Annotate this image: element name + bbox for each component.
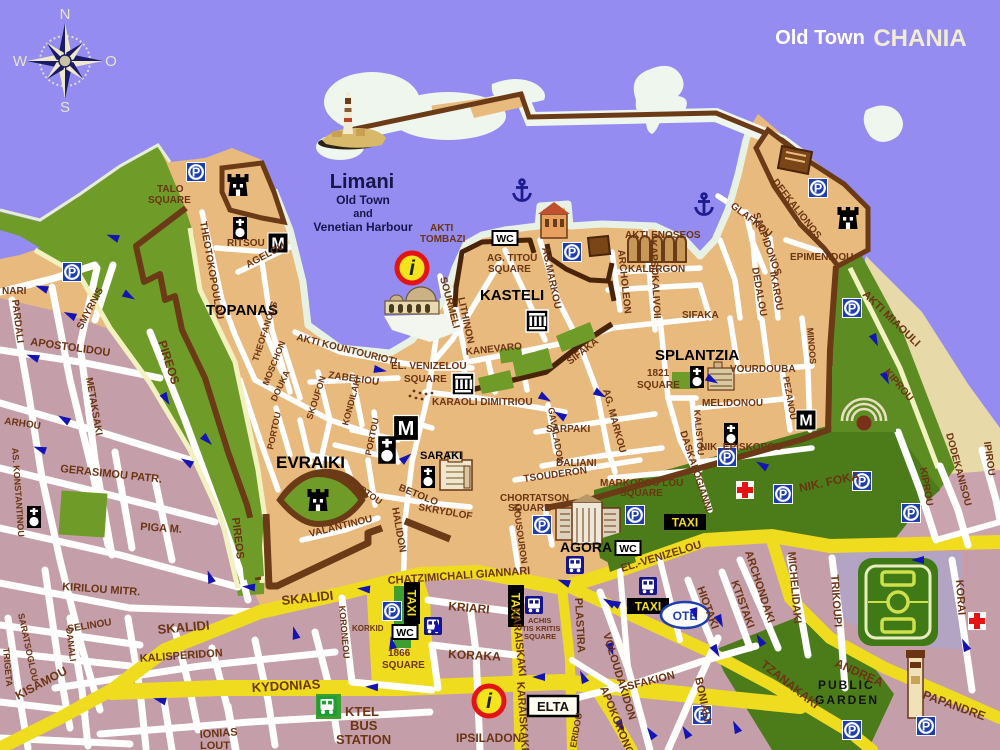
- svg-text:Venetian Harbour: Venetian Harbour: [313, 220, 413, 234]
- svg-text:IPSILADON: IPSILADON: [456, 731, 521, 745]
- svg-text:LOUT: LOUT: [200, 740, 230, 750]
- svg-text:Old Town: Old Town: [775, 27, 865, 49]
- svg-text:1866: 1866: [388, 648, 411, 659]
- svg-text:1821: 1821: [647, 368, 670, 379]
- svg-text:KORKID: KORKID: [352, 624, 384, 633]
- svg-text:KTEL: KTEL: [345, 704, 379, 719]
- svg-text:SIFAKA: SIFAKA: [682, 310, 719, 321]
- svg-text:VOURDOUBA: VOURDOUBA: [730, 364, 796, 375]
- svg-text:MELIDONOU: MELIDONOU: [702, 398, 763, 409]
- svg-text:N: N: [60, 6, 71, 23]
- svg-text:BUS: BUS: [350, 718, 378, 733]
- svg-text:KARAOLI DIMITRIOU: KARAOLI DIMITRIOU: [432, 397, 533, 408]
- svg-text:STATION: STATION: [336, 732, 391, 747]
- svg-text:KORAI: KORAI: [953, 579, 967, 615]
- svg-text:SQUARE: SQUARE: [637, 380, 680, 391]
- svg-text:Old Town: Old Town: [336, 193, 390, 207]
- svg-text:SQUARE: SQUARE: [524, 632, 556, 641]
- svg-text:TOMBAZI: TOMBAZI: [420, 234, 466, 245]
- svg-text:CHANIA: CHANIA: [873, 25, 966, 52]
- svg-text:SQUARE: SQUARE: [620, 488, 663, 499]
- svg-text:AGORA: AGORA: [560, 539, 612, 555]
- svg-text:SARAKI: SARAKI: [420, 450, 462, 462]
- svg-text:EL. VENIZELOU: EL. VENIZELOU: [391, 361, 467, 372]
- svg-text:SQUARE: SQUARE: [148, 195, 191, 206]
- svg-text:GARDEN: GARDEN: [815, 693, 879, 707]
- svg-text:SQUARE: SQUARE: [382, 660, 425, 671]
- svg-text:SQUARE: SQUARE: [404, 374, 447, 385]
- svg-text:NARI: NARI: [2, 286, 27, 297]
- svg-text:EPIMENIDOU: EPIMENIDOU: [790, 252, 853, 263]
- svg-text:TALO: TALO: [157, 184, 184, 195]
- svg-text:NIK. EPISKOPOU: NIK. EPISKOPOU: [700, 442, 782, 453]
- svg-text:EVRAIKI: EVRAIKI: [276, 453, 345, 472]
- svg-text:and: and: [353, 208, 373, 220]
- svg-text:W: W: [13, 53, 28, 70]
- svg-text:SQUARE: SQUARE: [508, 503, 551, 514]
- svg-text:S: S: [60, 99, 70, 116]
- svg-text:AG. TITOU: AG. TITOU: [487, 253, 537, 264]
- svg-text:KORAKA: KORAKA: [448, 647, 502, 664]
- svg-text:AKTI: AKTI: [430, 223, 454, 234]
- svg-text:ELTA: ELTA: [537, 699, 570, 714]
- svg-text:SQUARE: SQUARE: [488, 264, 531, 275]
- svg-text:AKTI ENOSEOS: AKTI ENOSEOS: [625, 230, 701, 241]
- svg-text:SPLANTZIA: SPLANTZIA: [655, 347, 739, 364]
- svg-text:KASTELI: KASTELI: [480, 287, 544, 304]
- svg-text:Limani: Limani: [330, 171, 394, 193]
- svg-text:RITSOU: RITSOU: [227, 238, 265, 249]
- svg-text:O: O: [105, 53, 117, 70]
